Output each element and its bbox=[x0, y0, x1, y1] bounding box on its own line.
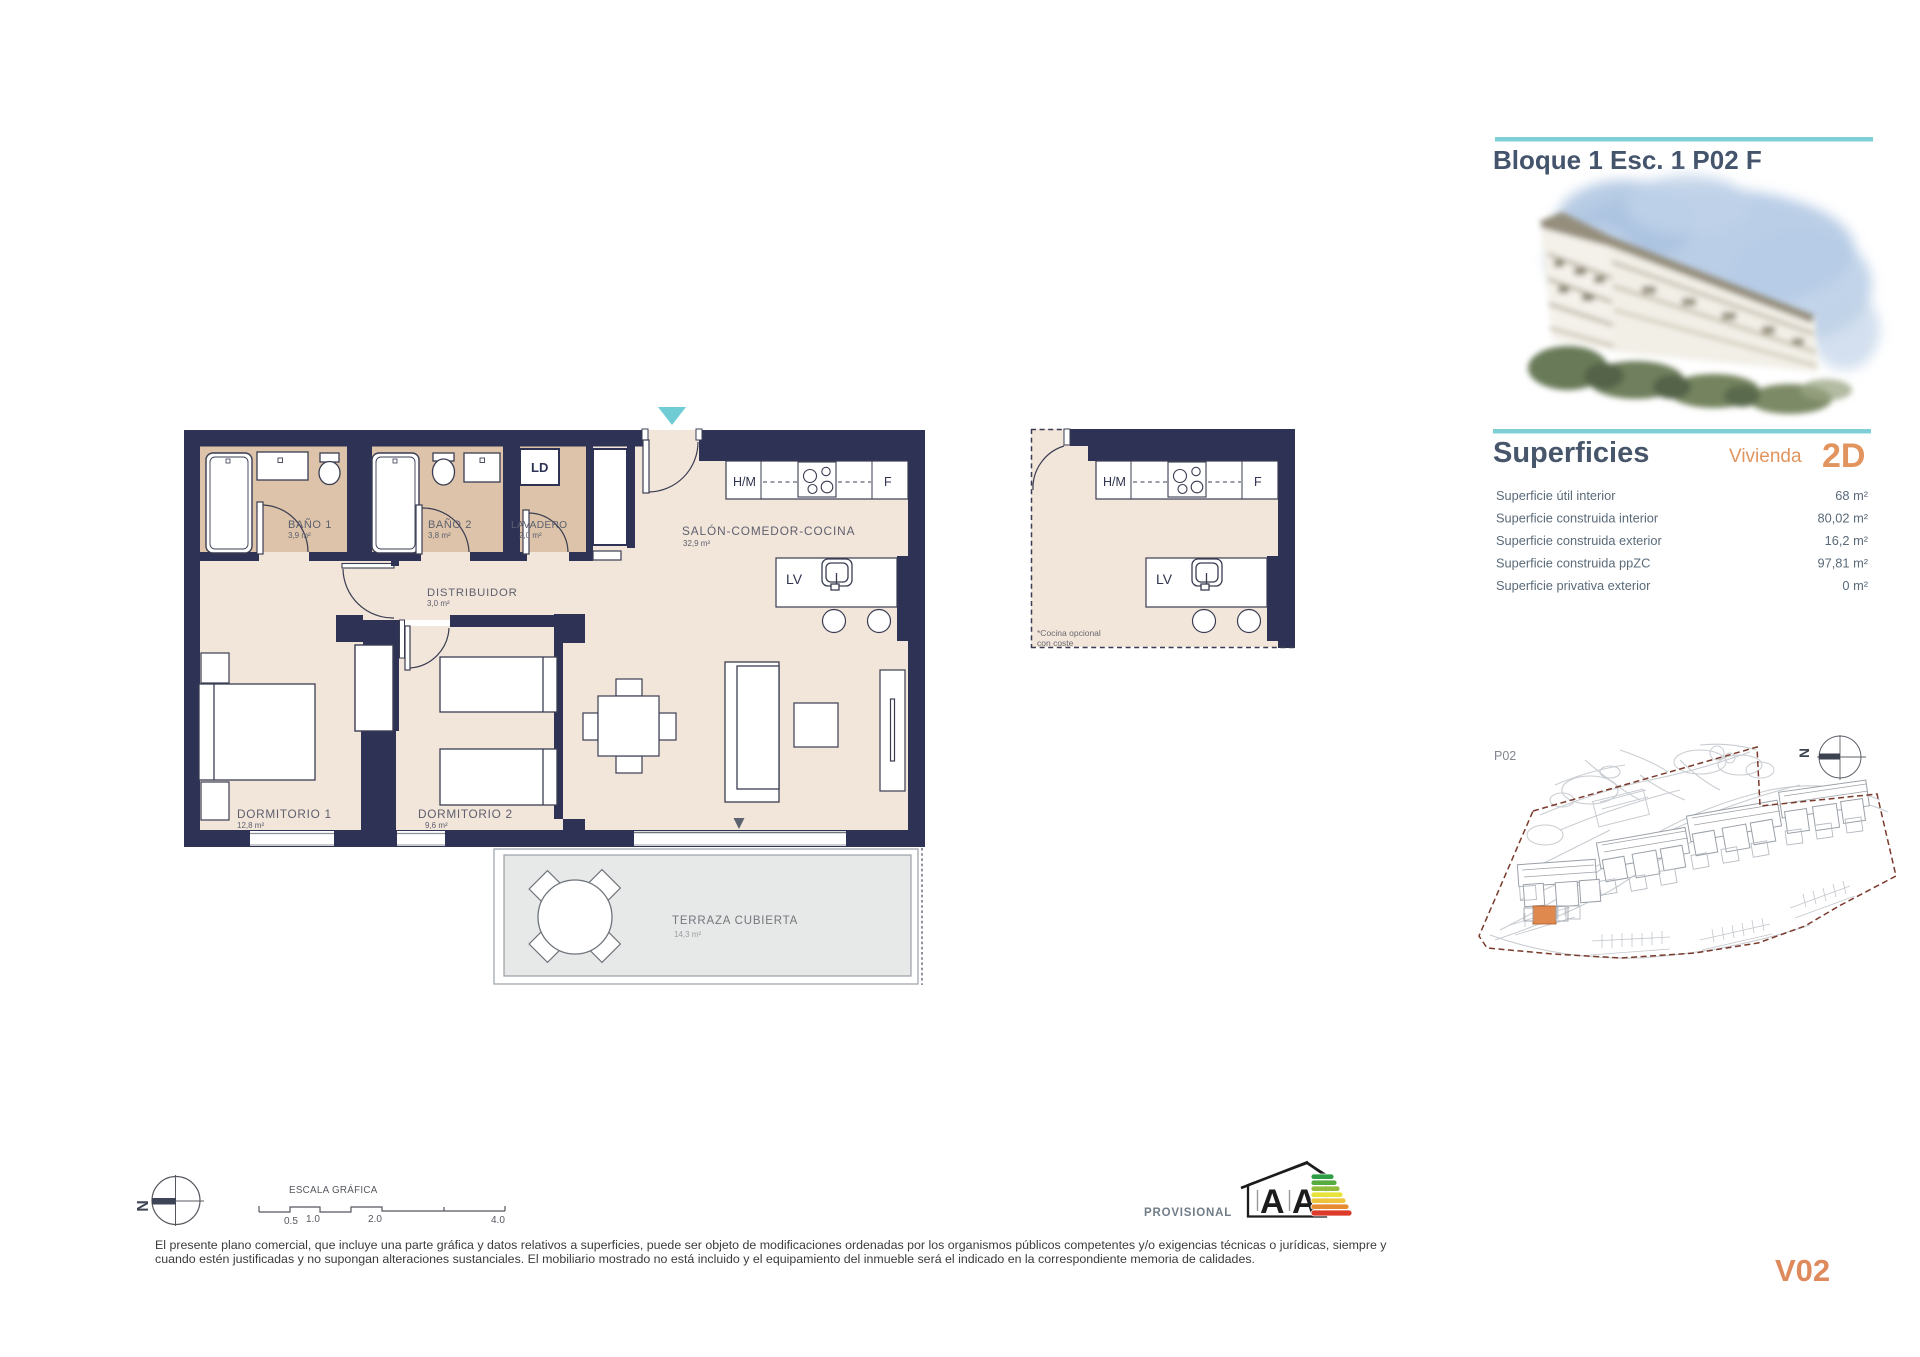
svg-text:12,8 m²: 12,8 m² bbox=[237, 821, 264, 830]
svg-text:0.5: 0.5 bbox=[284, 1216, 298, 1227]
svg-text:3,9 m²: 3,9 m² bbox=[288, 531, 311, 540]
svg-text:LD: LD bbox=[531, 460, 548, 475]
svg-text:2D: 2D bbox=[1822, 437, 1865, 475]
svg-text:TERRAZA CUBIERTA: TERRAZA CUBIERTA bbox=[672, 915, 798, 927]
svg-text:Superficie privativa exterior: Superficie privativa exterior bbox=[1496, 578, 1651, 593]
svg-text:68 m²: 68 m² bbox=[1835, 488, 1868, 503]
svg-text:H/M: H/M bbox=[733, 475, 756, 489]
svg-text:F: F bbox=[884, 475, 892, 489]
svg-text:*Cocina opcional: *Cocina opcional bbox=[1037, 628, 1101, 638]
svg-text:3,0 m²: 3,0 m² bbox=[427, 599, 450, 608]
svg-text:4.0: 4.0 bbox=[491, 1215, 505, 1226]
svg-text:32,9 m²: 32,9 m² bbox=[683, 539, 710, 548]
svg-text:H/M: H/M bbox=[1103, 475, 1126, 489]
svg-text:LV: LV bbox=[1156, 571, 1173, 587]
svg-text:DISTRIBUIDOR: DISTRIBUIDOR bbox=[427, 587, 518, 599]
svg-text:Superficies: Superficies bbox=[1493, 437, 1649, 469]
svg-text:16,2 m²: 16,2 m² bbox=[1825, 533, 1869, 548]
svg-text:Superficie construida interior: Superficie construida interior bbox=[1496, 511, 1659, 526]
svg-text:N: N bbox=[1797, 748, 1812, 758]
svg-text:SALÓN-COMEDOR-COCINA: SALÓN-COMEDOR-COCINA bbox=[682, 524, 855, 538]
svg-text:97,81 m²: 97,81 m² bbox=[1817, 556, 1868, 571]
svg-text:cuando estén justificadas y no: cuando estén justificadas y no supongan … bbox=[155, 1252, 1255, 1266]
svg-text:9,6 m²: 9,6 m² bbox=[425, 821, 448, 830]
svg-text:Vivienda: Vivienda bbox=[1729, 446, 1802, 467]
svg-text:N: N bbox=[135, 1200, 152, 1212]
svg-text:14,3 m²: 14,3 m² bbox=[674, 930, 701, 939]
svg-text:3,8 m²: 3,8 m² bbox=[428, 531, 451, 540]
svg-text:El presente plano comercial, q: El presente plano comercial, que incluye… bbox=[155, 1238, 1387, 1252]
svg-text:1.0: 1.0 bbox=[306, 1214, 320, 1225]
svg-text:Bloque 1 Esc. 1 P02 F: Bloque 1 Esc. 1 P02 F bbox=[1493, 145, 1762, 175]
svg-text:ESCALA GRÁFICA: ESCALA GRÁFICA bbox=[289, 1185, 378, 1196]
svg-text:V02: V02 bbox=[1775, 1253, 1830, 1288]
svg-text:PROVISIONAL: PROVISIONAL bbox=[1144, 1207, 1232, 1219]
svg-text:F: F bbox=[1254, 475, 1262, 489]
svg-text:DORMITORIO 2: DORMITORIO 2 bbox=[418, 807, 513, 821]
svg-text:LV: LV bbox=[786, 571, 803, 587]
svg-text:A: A bbox=[1260, 1183, 1285, 1221]
svg-text:2,0 m²: 2,0 m² bbox=[519, 531, 542, 540]
svg-text:2.0: 2.0 bbox=[368, 1214, 382, 1225]
svg-text:con coste: con coste bbox=[1037, 638, 1074, 648]
svg-text:DORMITORIO 1: DORMITORIO 1 bbox=[237, 807, 332, 821]
svg-text:0 m²: 0 m² bbox=[1842, 578, 1868, 593]
svg-text:80,02 m²: 80,02 m² bbox=[1817, 511, 1868, 526]
svg-text:BAÑO 2: BAÑO 2 bbox=[428, 518, 472, 531]
svg-text:Superficie construida exterior: Superficie construida exterior bbox=[1496, 533, 1662, 548]
svg-text:LAVADERO: LAVADERO bbox=[511, 520, 567, 531]
svg-text:P02: P02 bbox=[1494, 749, 1516, 763]
svg-text:BAÑO 1: BAÑO 1 bbox=[288, 518, 332, 531]
svg-text:Superficie construida ppZC: Superficie construida ppZC bbox=[1496, 556, 1650, 571]
svg-text:Superficie útil interior: Superficie útil interior bbox=[1496, 488, 1616, 503]
